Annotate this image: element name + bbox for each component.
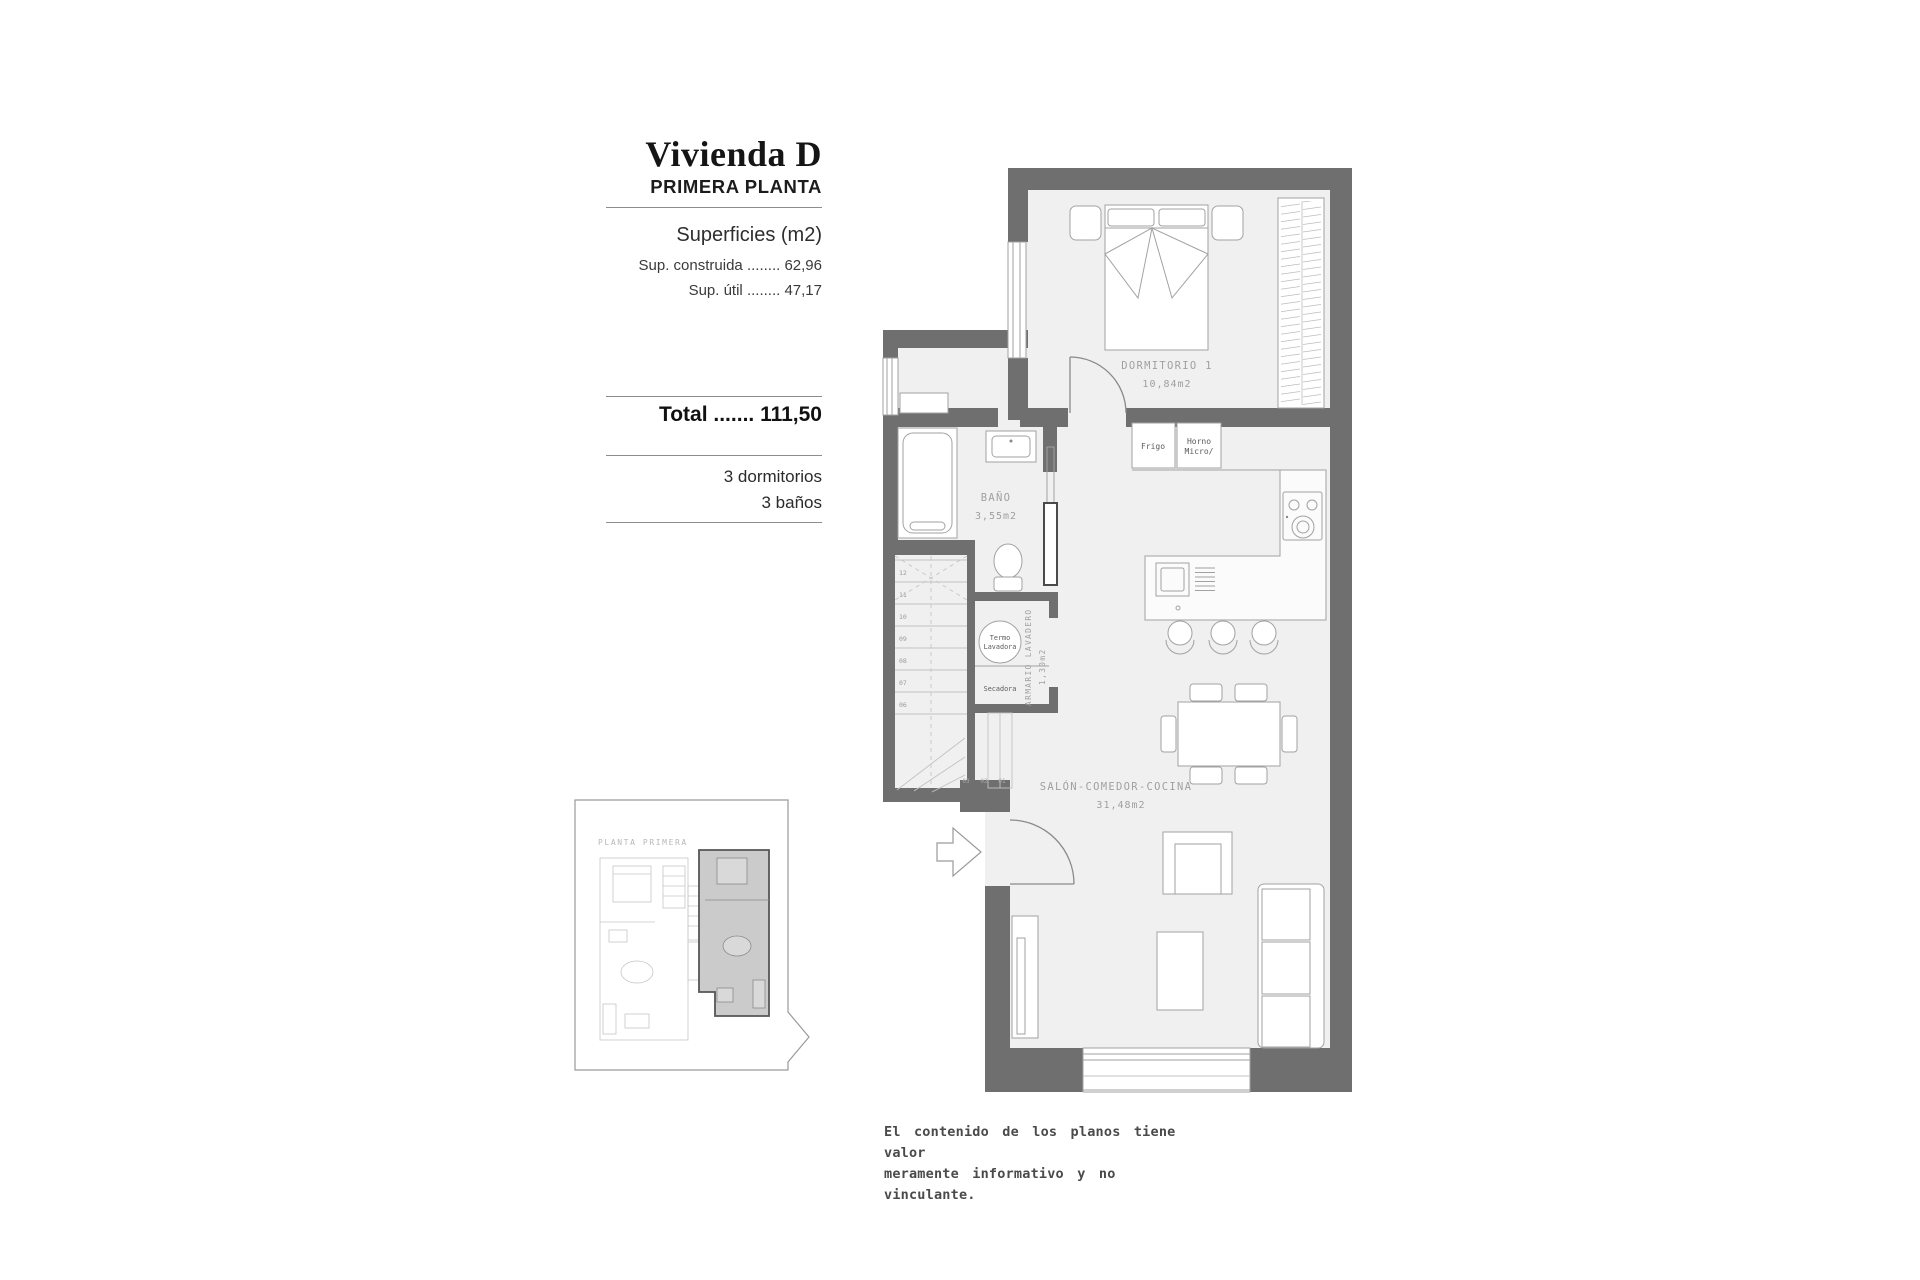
room-label-dormitorio: DORMITORIO 1: [1121, 360, 1212, 372]
toilet: [994, 544, 1022, 591]
divider: [606, 396, 822, 397]
sink: [986, 431, 1036, 462]
step-number: 03: [962, 778, 970, 785]
chair: [1161, 716, 1176, 752]
step-number: 10: [899, 613, 907, 621]
armchair: [1163, 832, 1232, 894]
living-room-window: [1083, 1048, 1250, 1092]
pillow: [1159, 209, 1205, 226]
surface-row: Sup. útil ........ 47,17: [480, 278, 822, 304]
step-number: 12: [899, 569, 907, 577]
total-line: Total ....... 111,50: [480, 403, 822, 427]
dryer-label: Secadora: [984, 685, 1017, 693]
features-list: 3 dormitorios 3 baños: [480, 464, 822, 517]
chair: [1190, 684, 1222, 701]
total-value: 111,50: [760, 403, 822, 426]
oven-label-1: Horno: [1187, 437, 1211, 446]
dots: ........: [747, 257, 780, 274]
wardrobe: [1278, 198, 1324, 408]
disclaimer: El contenido de los planos tiene valor m…: [884, 1122, 1214, 1206]
room-area-dormitorio: 10,84m2: [1142, 379, 1191, 390]
hall-shelf: [900, 393, 948, 413]
disclaimer-line: El contenido de los planos tiene valor: [884, 1122, 1214, 1164]
room-area-bano: 3,55m2: [975, 511, 1017, 522]
page-title: Vivienda D: [480, 136, 822, 174]
feature-bedrooms: 3 dormitorios: [480, 464, 822, 490]
tv-console: [1012, 916, 1038, 1038]
step-number: 06: [899, 701, 907, 709]
room-label-bano: BAÑO: [981, 491, 1012, 504]
fridge-label: Frigo: [1141, 442, 1165, 451]
room-label-armario: ARMARIO LAVADERO: [1024, 608, 1033, 706]
surfaces-rows: Sup. construida ........ 62,96 Sup. útil…: [480, 253, 822, 304]
step-number: 01: [998, 778, 1006, 785]
key-plan: PLANTA PRIMERA: [565, 790, 825, 1080]
dots: .......: [713, 403, 754, 426]
key-plan-highlighted-unit: [699, 850, 769, 1016]
dining-table: [1178, 702, 1280, 766]
divider: [606, 522, 822, 523]
surface-row-label: Sup. construida: [639, 257, 743, 274]
surface-row-label: Sup. útil: [689, 282, 743, 299]
divider: [606, 207, 822, 208]
nightstand: [1070, 206, 1101, 240]
chair: [1190, 767, 1222, 784]
step-number: 08: [899, 657, 907, 665]
room-area-salon: 31,48m2: [1096, 800, 1145, 811]
shower: [898, 428, 957, 538]
surface-row: Sup. construida ........ 62,96: [480, 253, 822, 279]
info-panel: Vivienda D PRIMERA PLANTA Superficies (m…: [480, 136, 822, 523]
entrance-arrow-icon: [937, 828, 981, 876]
total-label: Total: [659, 403, 708, 426]
chair: [1235, 684, 1267, 701]
floor-plan: 12 11 10 09 08 07 06 03 02 01 DORMITORIO…: [860, 150, 1372, 1112]
bedroom-window: [1008, 242, 1026, 358]
hall-window: [883, 358, 898, 415]
disclaimer-line: meramente informativo y no vinculante.: [884, 1164, 1214, 1206]
surfaces-heading: Superficies (m2): [480, 224, 822, 247]
chair: [1282, 716, 1297, 752]
bed: [1105, 205, 1208, 350]
coffee-table: [1157, 932, 1203, 1010]
pillow: [1108, 209, 1154, 226]
step-number: 11: [899, 591, 907, 599]
room-label-salon: SALÓN-COMEDOR-COCINA: [1040, 780, 1192, 793]
step-number: 02: [980, 778, 988, 785]
oven-label-2: Micro/: [1185, 447, 1214, 456]
chair: [1235, 767, 1267, 784]
washer-label-1: Termo: [990, 634, 1010, 642]
feature-bathrooms: 3 baños: [480, 490, 822, 516]
step-number: 09: [899, 635, 907, 643]
nightstand: [1212, 206, 1243, 240]
room-area-armario: 1,30m2: [1038, 648, 1047, 685]
washer-label-2: Lavadora: [984, 643, 1017, 651]
sofa: [1258, 884, 1324, 1048]
page-subtitle: PRIMERA PLANTA: [480, 176, 822, 198]
washer: [979, 621, 1021, 663]
key-plan-label: PLANTA PRIMERA: [598, 838, 688, 847]
surface-row-value: 47,17: [784, 282, 822, 299]
dots: ........: [747, 282, 780, 299]
step-number: 07: [899, 679, 907, 687]
divider: [606, 455, 822, 456]
surface-row-value: 62,96: [784, 257, 822, 274]
